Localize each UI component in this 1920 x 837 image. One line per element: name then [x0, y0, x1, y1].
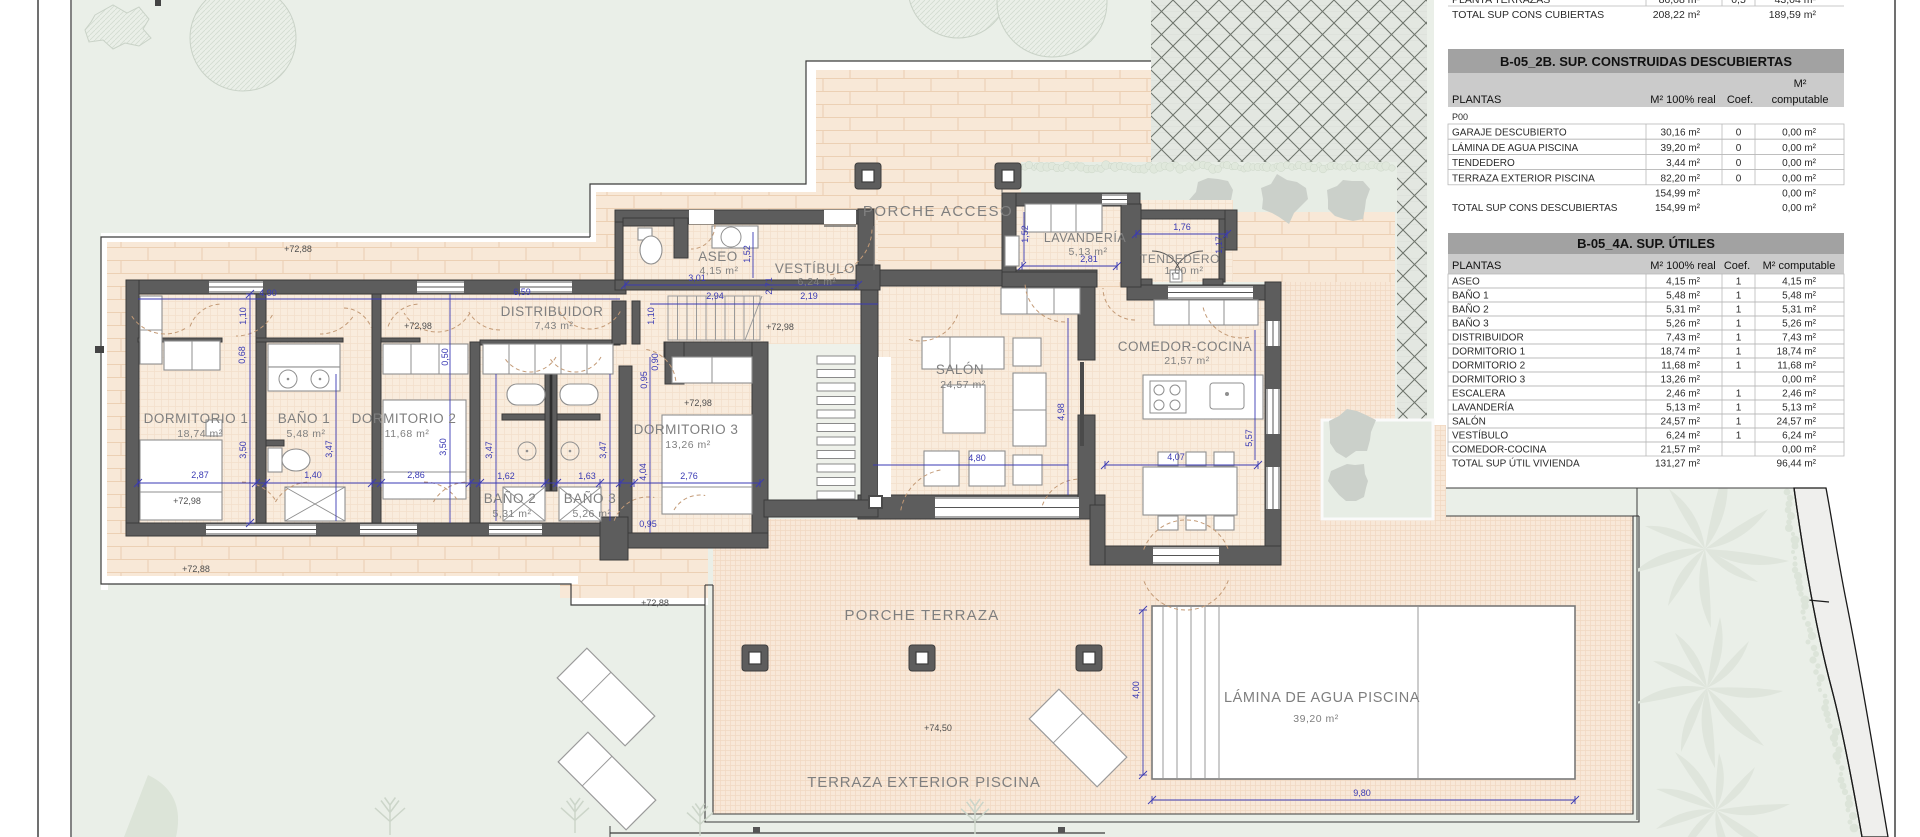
svg-text:3,47: 3,47 — [598, 441, 608, 459]
svg-text:5,13 m²: 5,13 m² — [1782, 403, 1817, 414]
svg-text:4,15 m²: 4,15 m² — [1782, 277, 1817, 288]
svg-text:1,10: 1,10 — [238, 307, 248, 325]
svg-text:VESTÍBULO: VESTÍBULO — [775, 261, 855, 276]
svg-text:0,50: 0,50 — [440, 348, 450, 366]
svg-text:1: 1 — [1736, 277, 1742, 288]
svg-text:M²: M² — [1794, 78, 1807, 90]
svg-text:2,19: 2,19 — [800, 291, 818, 301]
svg-text:LÁMINA DE AGUA PISCINA: LÁMINA DE AGUA PISCINA — [1452, 141, 1578, 154]
svg-text:5,57: 5,57 — [1244, 429, 1254, 447]
svg-text:SALÓN: SALÓN — [936, 362, 984, 377]
svg-text:43,04 m²: 43,04 m² — [1775, 0, 1817, 6]
svg-text:1: 1 — [1736, 291, 1742, 302]
svg-text:30,16 m²: 30,16 m² — [1661, 128, 1701, 139]
svg-text:0,5: 0,5 — [1731, 0, 1746, 6]
svg-text:ESCALERA: ESCALERA — [1452, 389, 1506, 400]
svg-text:0: 0 — [1736, 143, 1742, 154]
svg-text:0: 0 — [1736, 128, 1742, 139]
svg-text:+72,98: +72,98 — [684, 398, 712, 408]
svg-text:6,24 m²: 6,24 m² — [1666, 431, 1701, 442]
svg-text:1,10: 1,10 — [646, 307, 656, 325]
svg-text:PLANTAS: PLANTAS — [1452, 94, 1501, 106]
svg-text:Coef.: Coef. — [1724, 260, 1750, 272]
svg-text:0,00 m²: 0,00 m² — [1782, 445, 1817, 456]
svg-text:1: 1 — [1736, 333, 1742, 344]
svg-text:DORMITORIO 1: DORMITORIO 1 — [144, 411, 249, 426]
svg-text:4,80: 4,80 — [968, 453, 986, 463]
svg-text:0,00 m²: 0,00 m² — [1782, 143, 1817, 154]
svg-text:1,62: 1,62 — [497, 471, 515, 481]
svg-text:4,90: 4,90 — [259, 288, 277, 298]
svg-text:1,52: 1,52 — [742, 245, 752, 263]
svg-text:86,08 m²: 86,08 m² — [1659, 0, 1701, 6]
svg-text:7,43 m²: 7,43 m² — [1782, 333, 1817, 344]
svg-text:39,20 m²: 39,20 m² — [1293, 713, 1338, 725]
svg-text:154,99 m²: 154,99 m² — [1655, 203, 1701, 214]
svg-text:4,15 m²: 4,15 m² — [699, 265, 738, 277]
svg-text:24,57 m²: 24,57 m² — [1661, 417, 1701, 428]
svg-text:LAVANDERÍA: LAVANDERÍA — [1452, 401, 1514, 414]
svg-text:24,57 m²: 24,57 m² — [940, 379, 985, 391]
svg-text:3,50: 3,50 — [238, 441, 248, 459]
svg-text:13,26 m²: 13,26 m² — [1661, 375, 1701, 386]
svg-text:0,95: 0,95 — [639, 371, 649, 389]
svg-text:0,00 m²: 0,00 m² — [1782, 158, 1817, 169]
svg-text:+72,98: +72,98 — [173, 496, 201, 506]
svg-text:+72,88: +72,88 — [284, 244, 312, 254]
svg-text:PLANTAS: PLANTAS — [1452, 260, 1501, 272]
svg-text:TOTAL SUP CONS CUBIERTAS: TOTAL SUP CONS CUBIERTAS — [1452, 9, 1604, 21]
svg-text:5,31 m²: 5,31 m² — [492, 508, 531, 520]
svg-text:BAÑO 3: BAÑO 3 — [1452, 317, 1489, 330]
svg-text:+74,50: +74,50 — [924, 723, 952, 733]
svg-text:VESTÍBULO: VESTÍBULO — [1452, 429, 1508, 442]
svg-text:4,15 m²: 4,15 m² — [1666, 277, 1701, 288]
svg-text:BAÑO 3: BAÑO 3 — [564, 491, 617, 506]
svg-text:1: 1 — [1736, 417, 1742, 428]
svg-text:21,57 m²: 21,57 m² — [1661, 445, 1701, 456]
svg-text:PORCHE TERRAZA: PORCHE TERRAZA — [845, 607, 1000, 624]
svg-text:5,26 m²: 5,26 m² — [1782, 319, 1817, 330]
svg-text:M² 100% real: M² 100% real — [1650, 94, 1715, 106]
svg-text:1,40: 1,40 — [304, 470, 322, 480]
svg-text:0,00 m²: 0,00 m² — [1782, 375, 1817, 386]
svg-text:M² computable: M² computable — [1763, 260, 1836, 272]
svg-text:GARAJE DESCUBIERTO: GARAJE DESCUBIERTO — [1452, 128, 1567, 139]
svg-text:5,13 m²: 5,13 m² — [1666, 403, 1701, 414]
svg-text:0,68: 0,68 — [237, 346, 247, 364]
svg-text:96,44 m²: 96,44 m² — [1777, 459, 1817, 470]
svg-text:1: 1 — [1736, 431, 1742, 442]
svg-text:DORMITORIO 1: DORMITORIO 1 — [1452, 347, 1526, 358]
svg-text:131,27 m²: 131,27 m² — [1655, 459, 1701, 470]
svg-text:DORMITORIO 2: DORMITORIO 2 — [1452, 361, 1526, 372]
svg-text:18,74 m²: 18,74 m² — [1661, 347, 1701, 358]
svg-text:TOTAL SUP ÚTIL VIVIENDA: TOTAL SUP ÚTIL VIVIENDA — [1452, 457, 1580, 470]
svg-text:+72,88: +72,88 — [641, 598, 669, 608]
svg-text:21,57 m²: 21,57 m² — [1164, 355, 1209, 367]
svg-text:2,71: 2,71 — [764, 277, 774, 295]
svg-text:0: 0 — [1736, 173, 1742, 184]
svg-text:0,00 m²: 0,00 m² — [1782, 128, 1817, 139]
svg-text:5,13 m²: 5,13 m² — [1068, 246, 1107, 258]
svg-text:11,68 m²: 11,68 m² — [385, 428, 430, 440]
svg-text:DORMITORIO 2: DORMITORIO 2 — [352, 411, 457, 426]
svg-text:6,24 m²: 6,24 m² — [797, 276, 836, 288]
svg-text:B-05_2B. SUP. CONSTRUIDAS DESC: B-05_2B. SUP. CONSTRUIDAS DESCUBIERTAS — [1500, 54, 1792, 69]
svg-text:DISTRIBUIDOR: DISTRIBUIDOR — [501, 304, 604, 319]
svg-text:82,20 m²: 82,20 m² — [1661, 173, 1701, 184]
svg-text:5,48 m²: 5,48 m² — [1666, 291, 1701, 302]
svg-text:PLANTA TERRAZAS: PLANTA TERRAZAS — [1452, 0, 1550, 6]
svg-text:TENDEDERO: TENDEDERO — [1140, 252, 1220, 266]
svg-text:4,04: 4,04 — [638, 463, 648, 481]
svg-text:1,52: 1,52 — [1020, 225, 1030, 243]
svg-text:4,00: 4,00 — [1131, 681, 1141, 699]
svg-text:18,74 m²: 18,74 m² — [177, 428, 222, 440]
svg-text:LÁMINA DE AGUA PISCINA: LÁMINA DE AGUA PISCINA — [1224, 689, 1420, 706]
svg-text:Coef.: Coef. — [1727, 94, 1753, 106]
svg-text:DISTRIBUIDOR: DISTRIBUIDOR — [1452, 333, 1524, 344]
svg-text:ASEO: ASEO — [698, 249, 738, 264]
svg-text:M² 100% real: M² 100% real — [1650, 260, 1715, 272]
svg-text:ASEO: ASEO — [1452, 277, 1480, 288]
svg-text:11,68 m²: 11,68 m² — [1661, 361, 1700, 372]
svg-text:PORCHE ACCESO: PORCHE ACCESO — [863, 203, 1013, 220]
svg-text:154,99 m²: 154,99 m² — [1655, 188, 1701, 199]
svg-text:0,00 m²: 0,00 m² — [1782, 188, 1817, 199]
svg-text:2,76: 2,76 — [680, 471, 698, 481]
svg-text:1: 1 — [1736, 361, 1742, 372]
svg-text:0: 0 — [1736, 158, 1742, 169]
svg-text:1: 1 — [1736, 347, 1742, 358]
svg-text:BAÑO 1: BAÑO 1 — [278, 411, 331, 426]
svg-text:189,59 m²: 189,59 m² — [1769, 9, 1817, 21]
svg-text:1,63: 1,63 — [578, 471, 596, 481]
svg-text:7,43 m²: 7,43 m² — [534, 320, 573, 332]
svg-text:1: 1 — [1736, 389, 1742, 400]
svg-text:2,46 m²: 2,46 m² — [1782, 389, 1817, 400]
svg-text:BAÑO 2: BAÑO 2 — [484, 491, 537, 506]
svg-text:9,80: 9,80 — [1353, 788, 1371, 798]
svg-text:3,47: 3,47 — [484, 441, 494, 459]
svg-text:+72,98: +72,98 — [766, 322, 794, 332]
svg-text:3,47: 3,47 — [324, 440, 334, 458]
svg-text:DORMITORIO 3: DORMITORIO 3 — [634, 422, 739, 437]
svg-text:TERRAZA EXTERIOR PISCINA: TERRAZA EXTERIOR PISCINA — [1452, 173, 1595, 184]
svg-text:COMEDOR-COCINA: COMEDOR-COCINA — [1452, 445, 1547, 456]
svg-text:0,90: 0,90 — [650, 353, 660, 371]
svg-text:4,98: 4,98 — [1056, 403, 1066, 421]
svg-text:5,31 m²: 5,31 m² — [1782, 305, 1817, 316]
svg-text:0,00 m²: 0,00 m² — [1782, 173, 1817, 184]
svg-text:B-05_4A. SUP. ÚTILES: B-05_4A. SUP. ÚTILES — [1577, 236, 1715, 251]
svg-text:computable: computable — [1772, 94, 1829, 106]
svg-text:24,57 m²: 24,57 m² — [1777, 417, 1817, 428]
svg-text:P00: P00 — [1452, 112, 1468, 122]
svg-text:18,74 m²: 18,74 m² — [1777, 347, 1817, 358]
svg-text:2,87: 2,87 — [191, 470, 209, 480]
svg-text:2,86: 2,86 — [407, 470, 425, 480]
svg-text:5,26 m²: 5,26 m² — [572, 508, 611, 520]
svg-text:3,44 m²: 3,44 m² — [1666, 158, 1701, 169]
svg-text:13,26 m²: 13,26 m² — [665, 439, 710, 451]
svg-text:6,24 m²: 6,24 m² — [1782, 431, 1817, 442]
svg-text:COMEDOR-COCINA: COMEDOR-COCINA — [1118, 339, 1253, 354]
svg-text:1,60 m²: 1,60 m² — [1164, 265, 1203, 277]
svg-text:11,68 m²: 11,68 m² — [1777, 361, 1816, 372]
svg-text:5,26 m²: 5,26 m² — [1666, 319, 1701, 330]
svg-text:1: 1 — [1736, 305, 1742, 316]
svg-text:1: 1 — [1736, 319, 1742, 330]
svg-text:5,48 m²: 5,48 m² — [286, 428, 325, 440]
svg-text:39,20 m²: 39,20 m² — [1661, 143, 1701, 154]
svg-text:TOTAL SUP CONS DESCUBIERTAS: TOTAL SUP CONS DESCUBIERTAS — [1452, 203, 1618, 214]
svg-text:+72,98: +72,98 — [404, 321, 432, 331]
svg-text:BAÑO 1: BAÑO 1 — [1452, 289, 1489, 302]
svg-text:1: 1 — [1736, 403, 1742, 414]
svg-text:BAÑO 2: BAÑO 2 — [1452, 303, 1489, 316]
svg-text:4,07: 4,07 — [1167, 452, 1185, 462]
svg-text:6,59: 6,59 — [513, 287, 531, 297]
svg-text:DORMITORIO 3: DORMITORIO 3 — [1452, 375, 1526, 386]
svg-text:2,46 m²: 2,46 m² — [1666, 389, 1701, 400]
svg-text:3,50: 3,50 — [438, 438, 448, 456]
svg-text:TENDEDERO: TENDEDERO — [1452, 158, 1515, 169]
svg-text:LAVANDERÍA: LAVANDERÍA — [1044, 230, 1127, 245]
svg-text:5,31 m²: 5,31 m² — [1666, 305, 1701, 316]
svg-text:208,22 m²: 208,22 m² — [1653, 9, 1701, 21]
svg-text:SALÓN: SALÓN — [1452, 415, 1486, 428]
svg-text:2,94: 2,94 — [706, 291, 724, 301]
svg-text:+72,88: +72,88 — [182, 564, 210, 574]
svg-text:7,43 m²: 7,43 m² — [1666, 333, 1701, 344]
svg-text:0,00 m²: 0,00 m² — [1782, 203, 1817, 214]
svg-text:1,76: 1,76 — [1173, 222, 1191, 232]
svg-text:TERRAZA EXTERIOR PISCINA: TERRAZA EXTERIOR PISCINA — [807, 774, 1040, 791]
svg-text:5,48 m²: 5,48 m² — [1782, 291, 1817, 302]
svg-text:0,95: 0,95 — [639, 519, 657, 529]
